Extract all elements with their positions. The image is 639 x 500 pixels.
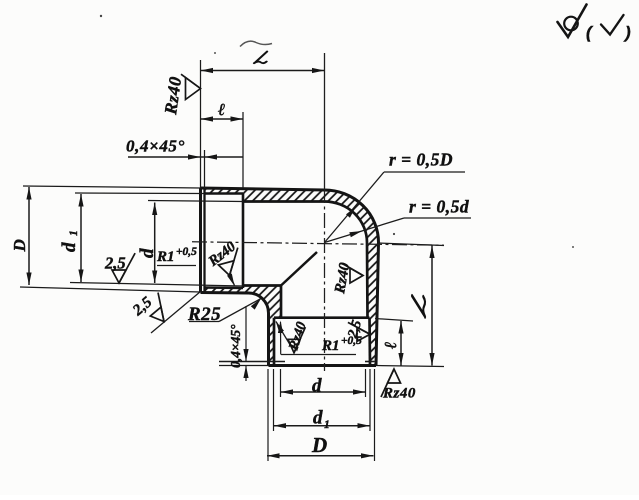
svg-text:+0,5: +0,5 [176, 246, 197, 258]
svg-text:r = 0,5D: r = 0,5D [389, 150, 453, 170]
svg-text:d: d [59, 242, 80, 252]
svg-text:d: d [313, 408, 323, 429]
svg-text:D: D [10, 239, 29, 252]
svg-text:): ) [623, 23, 631, 42]
svg-text:2,5: 2,5 [104, 254, 126, 273]
svg-text:0,4×45°: 0,4×45° [126, 137, 185, 156]
svg-text:R1: R1 [321, 338, 340, 354]
svg-text:ℓ: ℓ [218, 100, 225, 119]
svg-text:1: 1 [68, 230, 80, 236]
svg-text:R25: R25 [187, 304, 221, 325]
svg-text:Rz40: Rz40 [382, 386, 416, 402]
svg-text:D: D [311, 433, 327, 457]
svg-text:d: d [312, 376, 322, 397]
svg-text:0,4×45°: 0,4×45° [228, 324, 243, 368]
svg-text:ℓ: ℓ [381, 342, 400, 349]
svg-text:1: 1 [324, 419, 330, 431]
svg-text:d: d [137, 248, 158, 258]
svg-text:r = 0,5d: r = 0,5d [409, 197, 469, 217]
svg-text:R1: R1 [156, 249, 175, 265]
